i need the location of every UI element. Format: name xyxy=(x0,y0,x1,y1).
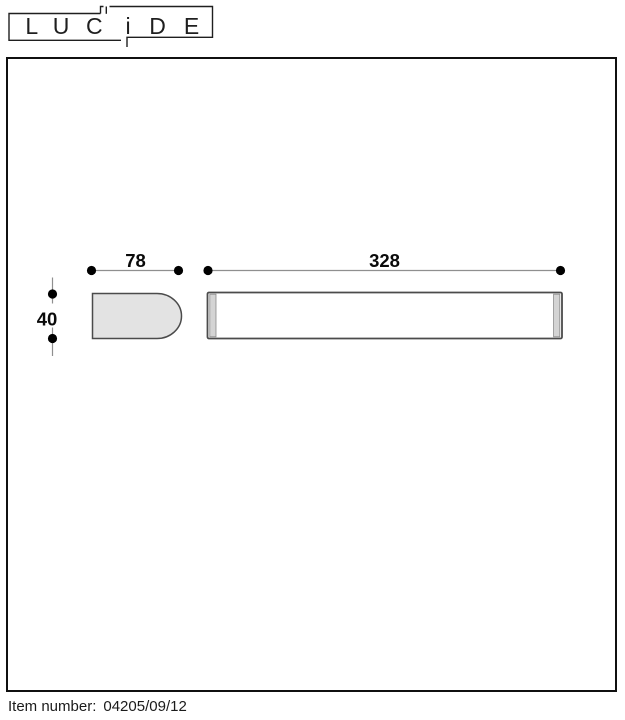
dimension-endpoint-dot xyxy=(48,334,57,343)
dimension-endpoint-dot xyxy=(48,289,57,298)
dimension-endpoint-dot xyxy=(203,266,212,275)
page: L U C i D E 78 328 40 xyxy=(0,0,625,720)
side-view-shape xyxy=(93,294,182,339)
front-view-bar xyxy=(208,293,563,339)
end-cap-right xyxy=(554,294,560,337)
item-number-row: Item number:04205/09/12 xyxy=(8,698,187,715)
dimension-endpoint-dot xyxy=(87,266,96,275)
dimension-endpoint-dot xyxy=(174,266,183,275)
item-number-label: Item number: xyxy=(8,698,96,715)
bar-outline xyxy=(208,293,563,339)
dimension-endpoint-dot xyxy=(556,266,565,275)
dimension-drawing: 78 328 40 xyxy=(0,0,625,720)
dimension-label-328: 328 xyxy=(369,250,400,271)
dimension-40: 40 xyxy=(37,278,58,357)
dimension-78: 78 xyxy=(87,250,183,275)
end-cap-left xyxy=(210,294,216,337)
dimension-label-40: 40 xyxy=(37,309,58,330)
dimension-label-78: 78 xyxy=(125,250,146,271)
item-number-value: 04205/09/12 xyxy=(103,698,186,715)
dimension-328: 328 xyxy=(203,250,565,275)
